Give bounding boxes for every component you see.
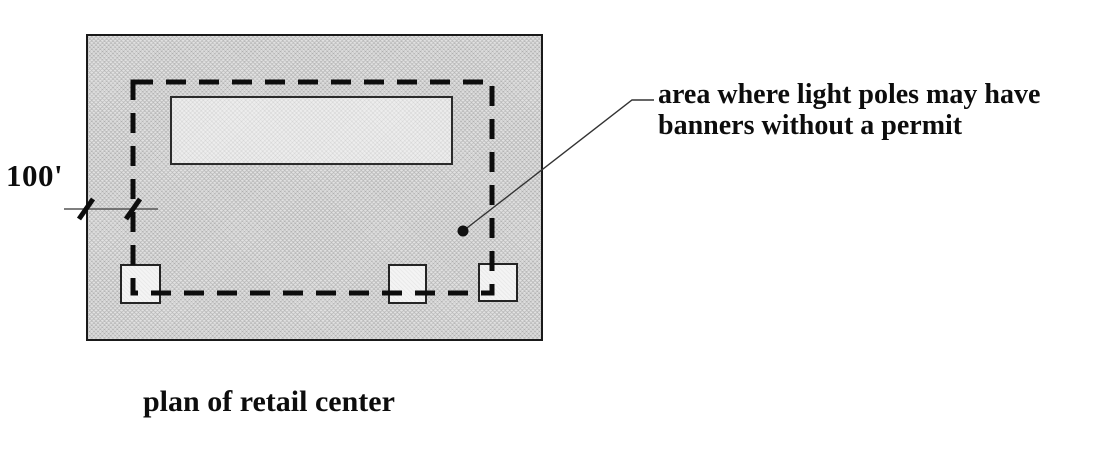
main-building bbox=[170, 96, 453, 165]
annotation-line-2: banners without a permit bbox=[658, 110, 1105, 141]
pad-building-left bbox=[120, 264, 161, 304]
dimension-label: 100' bbox=[6, 158, 63, 194]
site-plan-figure: 100' area where light poles may have ban… bbox=[0, 0, 1105, 453]
annotation-line-1: area where light poles may have bbox=[658, 79, 1105, 110]
pad-building-middle bbox=[388, 264, 427, 304]
pad-building-right bbox=[478, 263, 518, 302]
figure-caption: plan of retail center bbox=[143, 385, 395, 419]
annotation-label: area where light poles may have banners … bbox=[658, 79, 1105, 141]
